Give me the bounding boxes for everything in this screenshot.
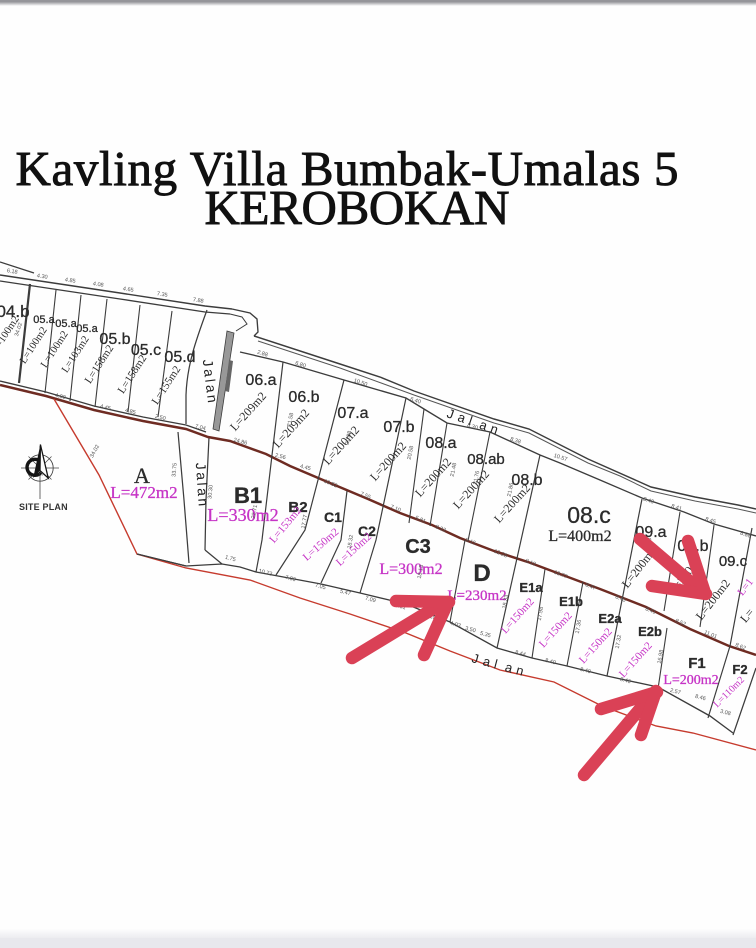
svg-text:L=400m2: L=400m2: [548, 528, 611, 545]
svg-text:33.75: 33.75: [171, 463, 178, 477]
svg-text:E1a: E1a: [519, 580, 543, 595]
svg-text:05.c: 05.c: [131, 342, 161, 359]
svg-text:08.ab: 08.ab: [467, 451, 505, 468]
svg-text:07.a: 07.a: [337, 405, 368, 422]
svg-text:05.a: 05.a: [33, 314, 55, 326]
svg-text:E2b: E2b: [638, 624, 662, 639]
svg-text:D: D: [473, 560, 490, 587]
svg-text:05.a: 05.a: [55, 318, 77, 330]
svg-text:L=472m2: L=472m2: [110, 483, 177, 502]
svg-text:05.d: 05.d: [164, 349, 195, 366]
svg-text:07.b: 07.b: [383, 419, 414, 436]
svg-text:06.b: 06.b: [288, 389, 319, 406]
svg-text:SITE PLAN: SITE PLAN: [19, 502, 68, 512]
svg-text:L=200m2: L=200m2: [663, 673, 718, 688]
svg-text:E2a: E2a: [598, 611, 622, 626]
svg-text:F1: F1: [688, 655, 706, 672]
svg-text:L=230m2: L=230m2: [447, 588, 506, 604]
svg-text:08.c: 08.c: [567, 502, 610, 528]
svg-text:C3: C3: [405, 536, 431, 558]
svg-text:L=300m2: L=300m2: [379, 561, 442, 578]
svg-text:17: 17: [38, 472, 44, 477]
svg-text:06.a: 06.a: [245, 372, 276, 389]
svg-text:C1: C1: [324, 509, 342, 525]
svg-text:L=330m2: L=330m2: [207, 505, 278, 525]
svg-text:F2: F2: [732, 662, 747, 677]
svg-text:09.c: 09.c: [719, 553, 748, 570]
svg-text:E1b: E1b: [559, 594, 583, 609]
svg-text:08.a: 08.a: [425, 435, 456, 452]
svg-text:05.a: 05.a: [76, 323, 98, 335]
svg-text:30.30: 30.30: [207, 485, 214, 499]
svg-text:KEROBOKAN: KEROBOKAN: [205, 180, 510, 235]
